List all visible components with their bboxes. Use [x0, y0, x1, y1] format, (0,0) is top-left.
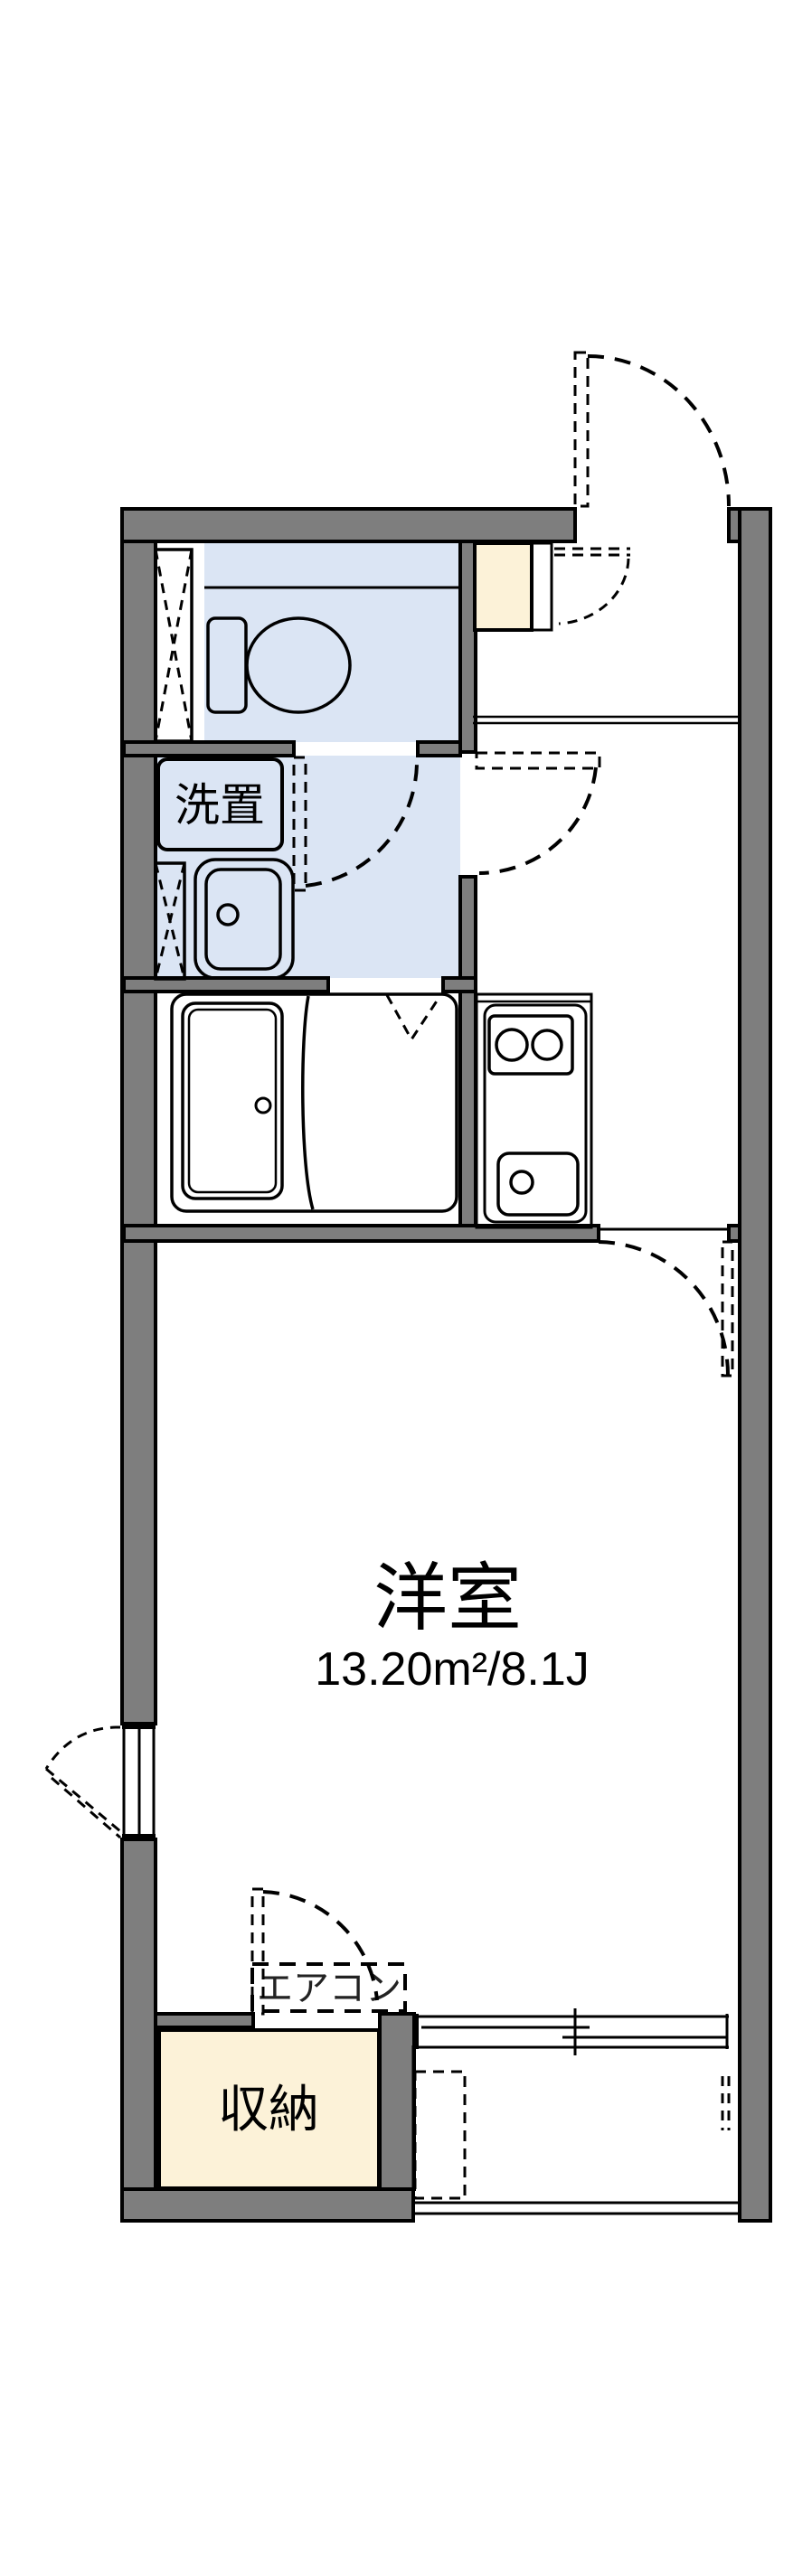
- balcony-partition-panel: [415, 2072, 465, 2198]
- stove-top-icon: [489, 1016, 572, 1074]
- storage-label: 収納: [218, 2081, 319, 2138]
- aircon-label: エアコン: [257, 1969, 401, 2008]
- pipe-shaft-upper-x1: [156, 550, 192, 741]
- outer-wall-right: [740, 509, 770, 2221]
- living-door-leaf: [722, 1242, 732, 1376]
- shoe-cabinet-side: [532, 543, 552, 630]
- living-room-label: 洋室: [373, 1557, 522, 1640]
- outer-wall-bottom-left: [122, 2189, 413, 2221]
- outer-wall-top: [122, 509, 575, 541]
- air-conditioner: エアコン: [252, 1964, 405, 2011]
- wall-washroom-bath-right: [443, 978, 476, 992]
- bathtub-drain-icon: [256, 1098, 270, 1113]
- floor-plan: 洗置 洋室 13.20m²/8.1J: [0, 0, 812, 2576]
- outer-wall-left-lower: [122, 1839, 156, 2221]
- outer-wall-left-upper: [122, 509, 156, 1724]
- bathroom: [172, 994, 457, 1211]
- entry-door-leaf: [575, 353, 588, 506]
- stove-burner-left-icon: [496, 1029, 527, 1060]
- cabinet-door-arc: [559, 559, 628, 624]
- shoe-cabinet: [475, 543, 532, 630]
- left-window: [46, 1724, 156, 1839]
- bath-divider-curve: [303, 996, 313, 1209]
- left-window-swing-arc: [46, 1727, 120, 1769]
- wall-living-door-stub: [729, 1226, 740, 1241]
- wall-storage-right: [380, 2014, 414, 2189]
- pipe-shaft-upper-x2: [156, 550, 192, 741]
- washroom-door-leaf: [477, 753, 600, 768]
- washroom-door-arc: [479, 767, 596, 873]
- living-door-arc: [599, 1242, 728, 1375]
- living-room-area: 13.20m²/8.1J: [315, 1643, 590, 1696]
- left-window-swing-line-1: [46, 1769, 120, 1831]
- wall-below-toilet-right: [418, 742, 460, 756]
- partition-wash-hall: [460, 877, 476, 1241]
- stove-burner-right-icon: [533, 1030, 562, 1059]
- kitchen: [477, 994, 591, 1227]
- pipe-shaft-upper: [156, 550, 192, 741]
- floor-plan-canvas: 洗置 洋室 13.20m²/8.1J: [0, 0, 812, 2576]
- washer-space-label: 洗置: [175, 780, 265, 831]
- left-window-swing-line-2: [52, 1778, 120, 1838]
- kitchen-sink-drain-icon: [511, 1171, 533, 1193]
- entry-door-swing-arc: [588, 356, 729, 506]
- wall-below-toilet-left: [124, 742, 294, 756]
- unit-bath-tray: [172, 994, 457, 1211]
- wall-storage-top: [156, 2014, 253, 2027]
- bath-folding-door: [387, 995, 439, 1039]
- balcony: [412, 2008, 740, 2214]
- bathtub-inner-icon: [189, 1010, 276, 1192]
- storage-room: 収納: [159, 1889, 379, 2188]
- kitchen-counter: [477, 994, 591, 1227]
- living-room: 洋室 13.20m²/8.1J: [315, 1229, 732, 1696]
